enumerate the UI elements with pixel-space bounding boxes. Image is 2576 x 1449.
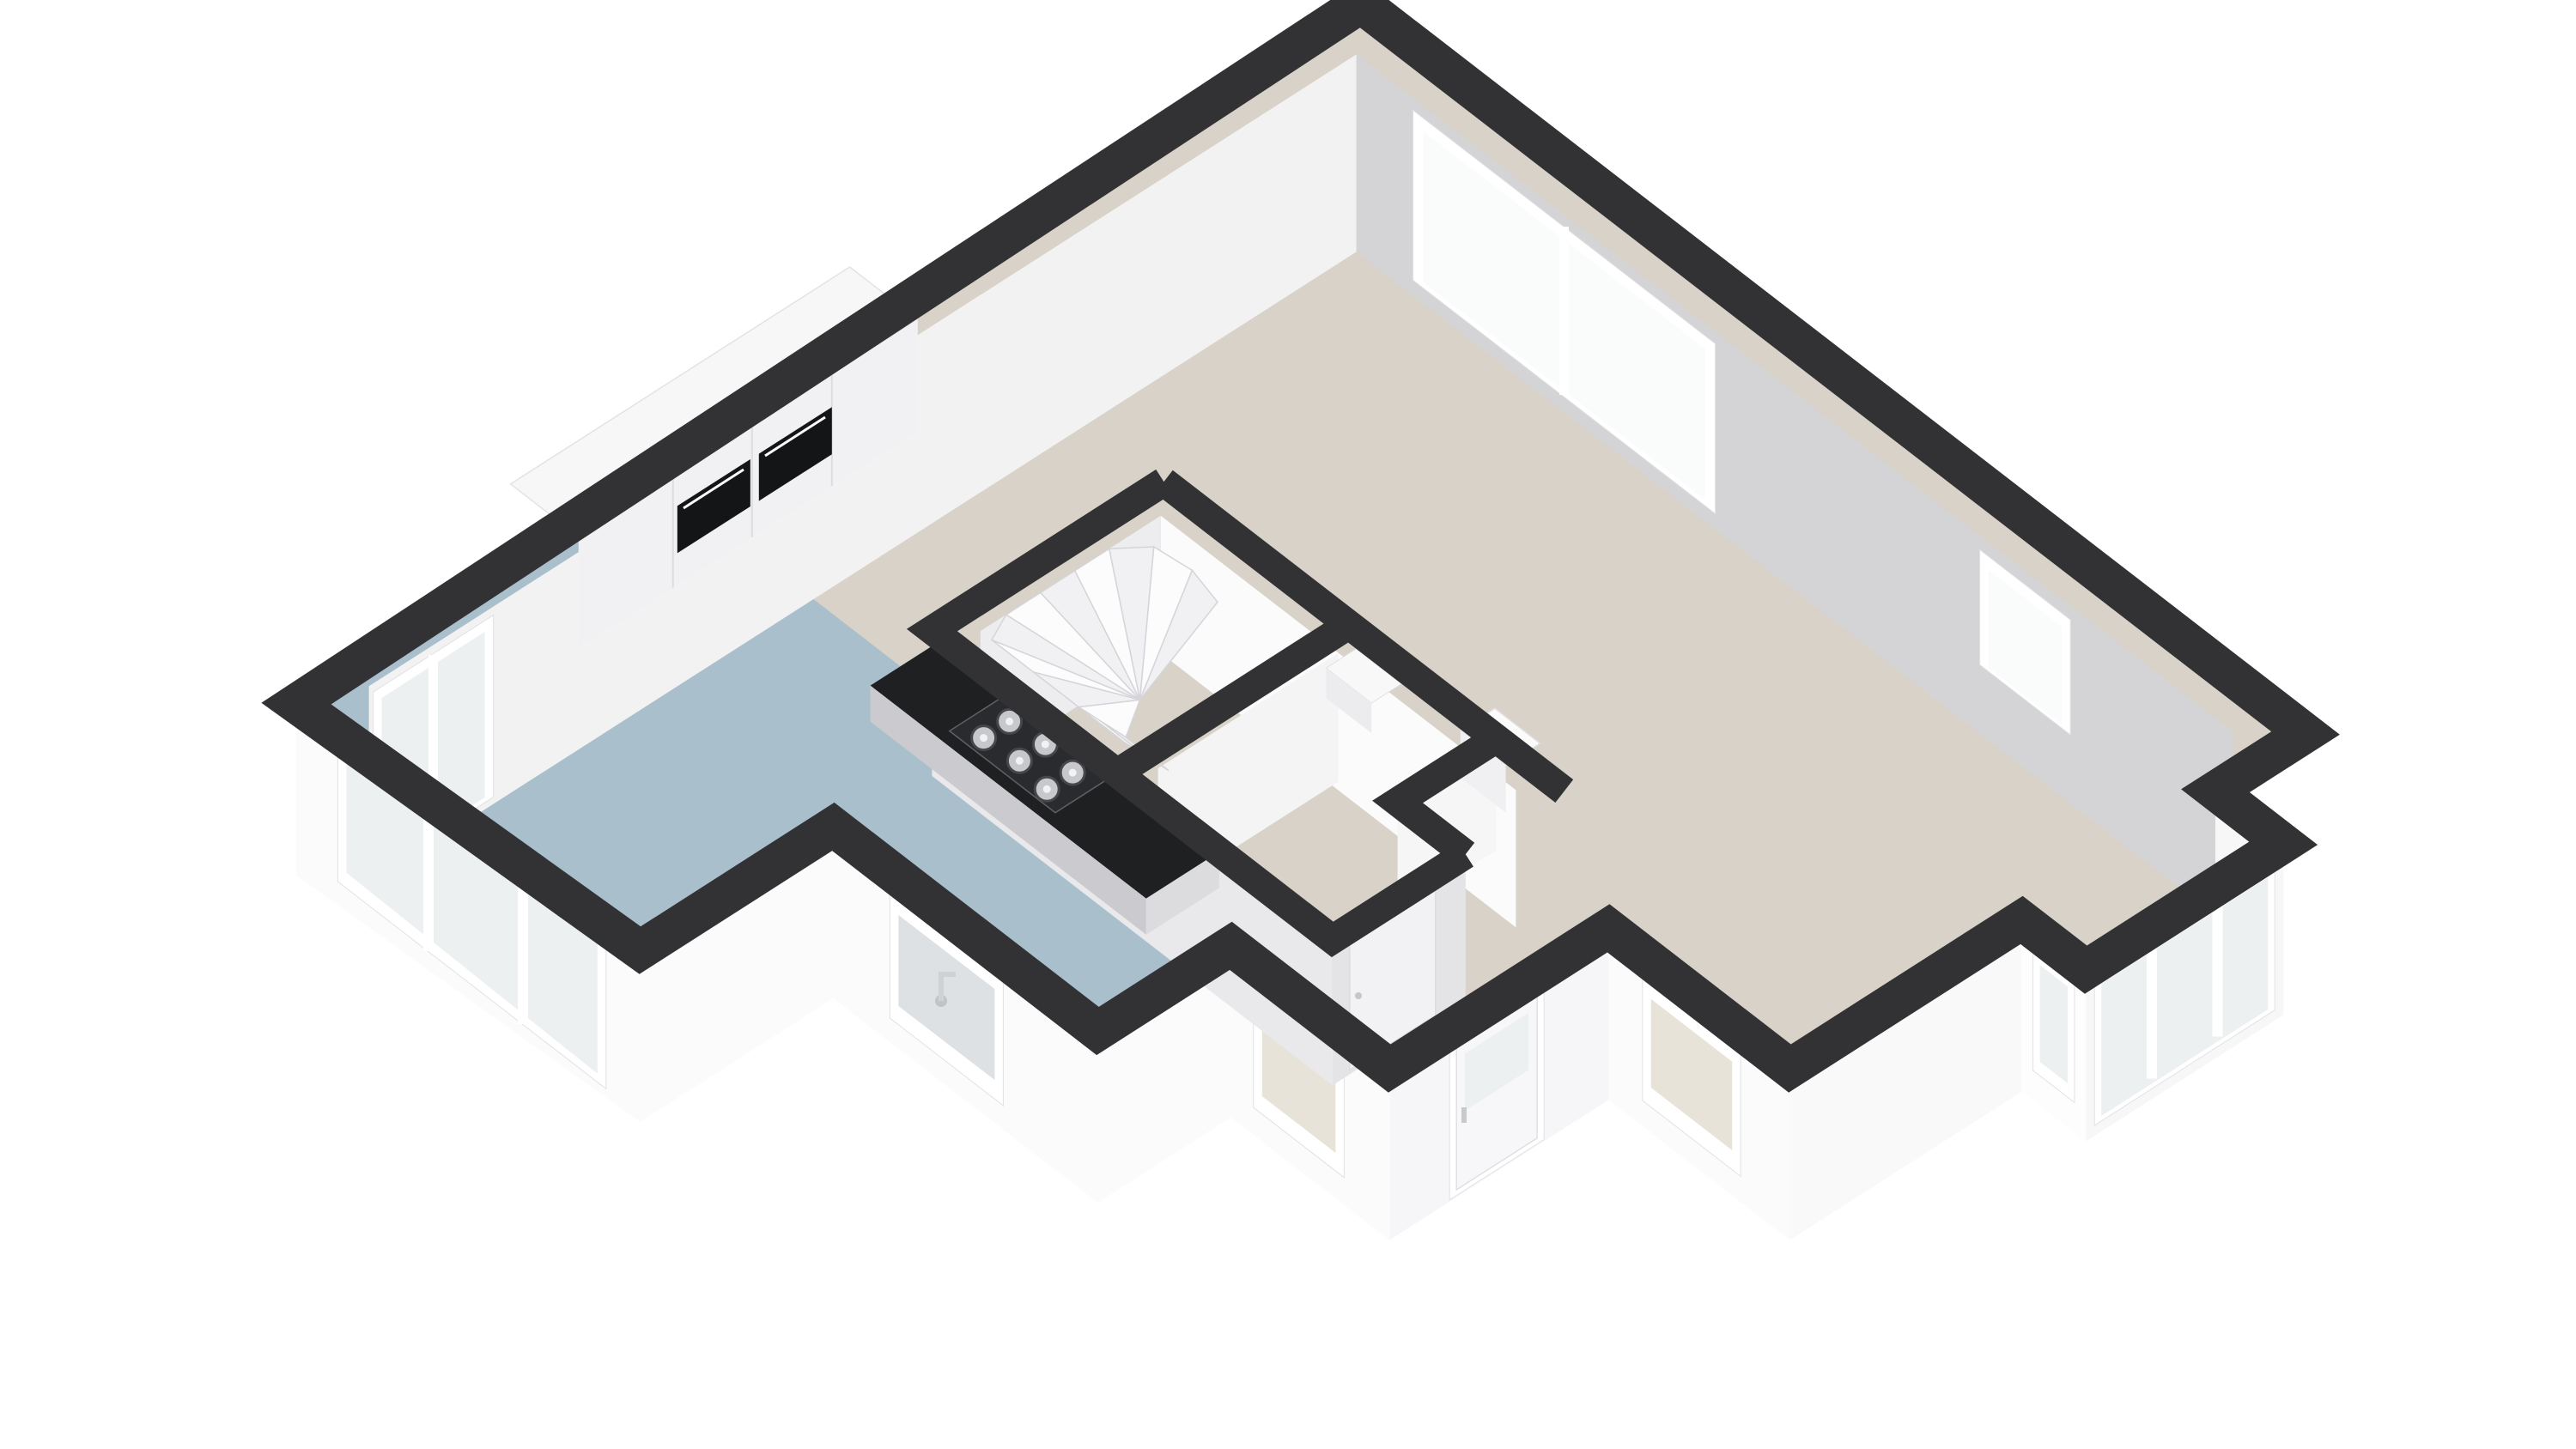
floor-plan-3d-view: [0, 0, 2576, 1449]
toilet-door-handle: [1355, 992, 1362, 999]
sliding-doors-mullion-1: [423, 807, 434, 951]
bay-glazing-mullion-1: [2213, 898, 2223, 1037]
sliding-doors-mullion-2: [518, 880, 528, 1024]
front-door-handle: [1461, 1107, 1467, 1123]
big-window-mullion: [1559, 227, 1569, 395]
bay-glazing-mullion-2: [2147, 940, 2157, 1079]
floor-plan-svg: [0, 0, 2576, 1449]
